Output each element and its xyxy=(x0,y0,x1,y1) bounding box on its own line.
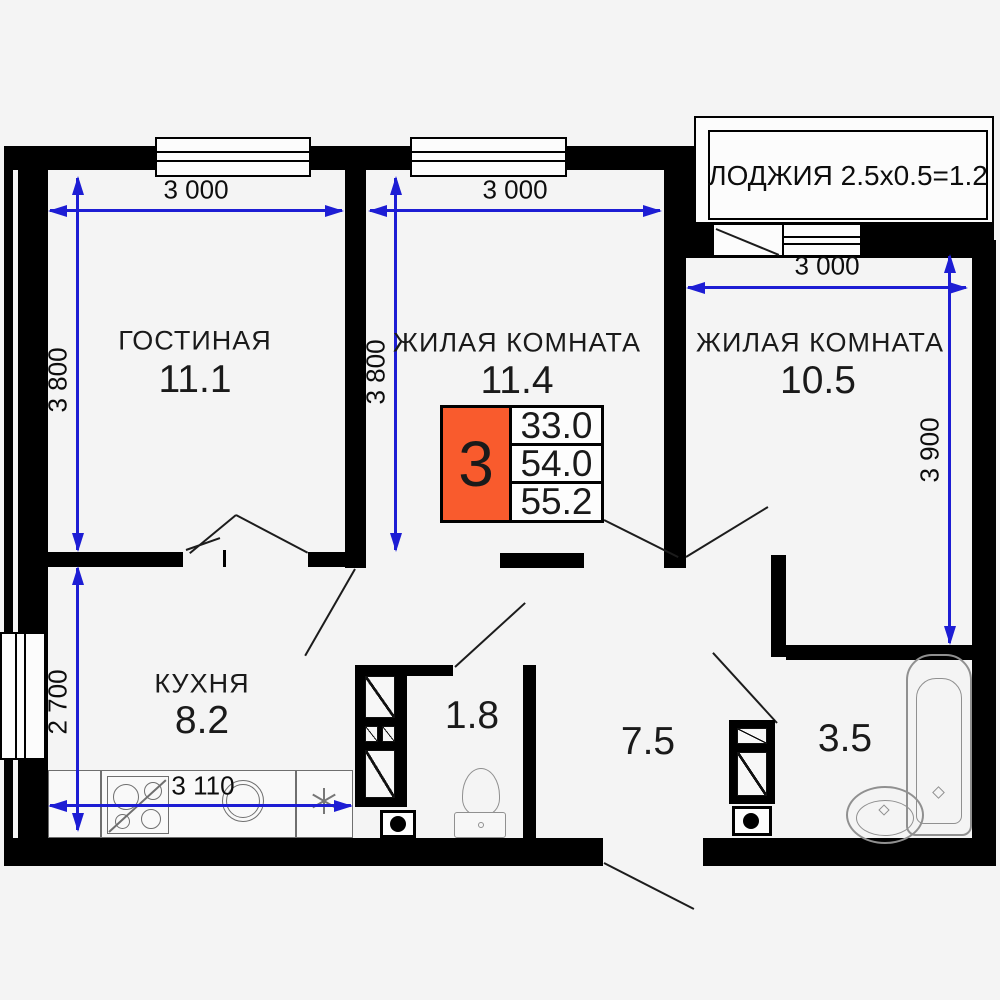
vent-duct-marker xyxy=(732,806,772,836)
vent-shaft-cell xyxy=(365,750,395,798)
dimension-label: 3 900 xyxy=(915,417,946,482)
room-label-bedroom-mid: ЖИЛАЯ КОМНАТА xyxy=(393,328,641,359)
room-label-bedroom-right: ЖИЛАЯ КОМНАТА xyxy=(696,328,944,359)
doorway-indicator-line xyxy=(304,569,356,657)
room-label-kitchen: КУХНЯ xyxy=(154,669,249,700)
dimension-label: 3 800 xyxy=(43,347,74,412)
floor-plan: ЛОДЖИЯ 2.5x0.5=1.2 xyxy=(0,0,1000,1000)
vent-shaft-cell xyxy=(737,752,767,796)
wall xyxy=(664,146,686,568)
dimension-line xyxy=(48,204,344,217)
wall xyxy=(523,665,536,838)
vent-shaft-cell xyxy=(365,676,395,718)
room-area-bedroom-mid: 11.4 xyxy=(480,359,553,403)
wall xyxy=(771,555,786,657)
door-frame-tick xyxy=(223,550,226,567)
window xyxy=(410,137,567,177)
vent-duct-marker xyxy=(380,810,416,838)
vent-shaft-cell xyxy=(365,726,378,742)
toilet-tank-icon xyxy=(454,812,506,838)
wall xyxy=(686,146,696,258)
dimension-label: 2 700 xyxy=(43,669,74,734)
room-area-bedroom-right: 10.5 xyxy=(780,359,856,403)
doorway-indicator-line xyxy=(236,514,309,554)
doorway-indicator-line xyxy=(685,506,768,558)
window-kitchen xyxy=(0,632,46,760)
legend-value-2: 54.0 xyxy=(509,443,604,484)
room-area-living: 11.1 xyxy=(158,358,231,402)
room-label-living: ГОСТИНАЯ xyxy=(118,326,272,357)
wall xyxy=(308,552,346,567)
room-area-kitchen: 8.2 xyxy=(175,699,229,743)
wall xyxy=(48,552,183,567)
doorway-indicator-line xyxy=(454,602,526,668)
vent-shaft-cell xyxy=(737,728,767,744)
room-area-hallway: 7.5 xyxy=(621,720,675,764)
dimension-label: 3 110 xyxy=(171,771,234,802)
room-area-wc: 1.8 xyxy=(445,694,499,738)
door-leaf-line xyxy=(186,537,221,551)
wall xyxy=(407,665,453,676)
dimension-line xyxy=(368,204,662,217)
dimension-label: 3 000 xyxy=(794,251,859,282)
room-area-bathroom: 3.5 xyxy=(818,717,872,761)
legend-rooms-count: 3 xyxy=(440,405,512,523)
dimension-label: 3 800 xyxy=(361,339,392,404)
bathtub-inner xyxy=(916,678,962,824)
window xyxy=(155,137,311,177)
wall xyxy=(703,838,996,866)
dimension-label: 3 000 xyxy=(482,175,547,206)
loggia-label: ЛОДЖИЯ 2.5x0.5=1.2 xyxy=(708,160,988,192)
dimension-label: 3 000 xyxy=(163,175,228,206)
legend-value-3: 55.2 xyxy=(509,481,604,523)
wall xyxy=(500,553,584,568)
dimension-line xyxy=(686,281,968,294)
wall xyxy=(972,240,996,866)
wall xyxy=(18,168,48,866)
doorway-indicator-line xyxy=(712,652,778,724)
toilet-bowl-icon xyxy=(462,768,500,816)
wall xyxy=(4,838,603,866)
entrance-door-swing-line xyxy=(604,862,695,910)
legend-value-1: 33.0 xyxy=(509,405,604,446)
doorway-indicator-line xyxy=(189,514,237,554)
vent-shaft-cell xyxy=(382,726,395,742)
